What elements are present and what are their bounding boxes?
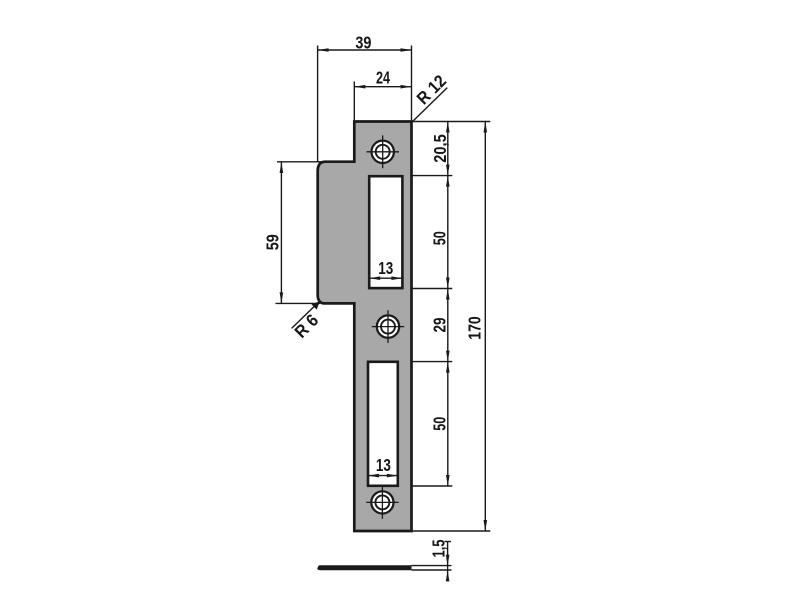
svg-text:24: 24 <box>376 68 390 88</box>
svg-text:13: 13 <box>378 258 393 278</box>
svg-text:50: 50 <box>430 231 450 245</box>
svg-text:29: 29 <box>430 317 450 332</box>
svg-text:170: 170 <box>465 316 485 340</box>
svg-text:39: 39 <box>355 32 371 52</box>
svg-text:R 6: R 6 <box>290 310 322 342</box>
svg-text:59: 59 <box>263 234 283 250</box>
svg-text:13: 13 <box>376 455 391 475</box>
svg-text:50: 50 <box>430 417 450 431</box>
svg-text:R 12: R 12 <box>413 71 451 109</box>
svg-text:1,5: 1,5 <box>429 539 449 557</box>
svg-text:20,5: 20,5 <box>430 134 450 163</box>
